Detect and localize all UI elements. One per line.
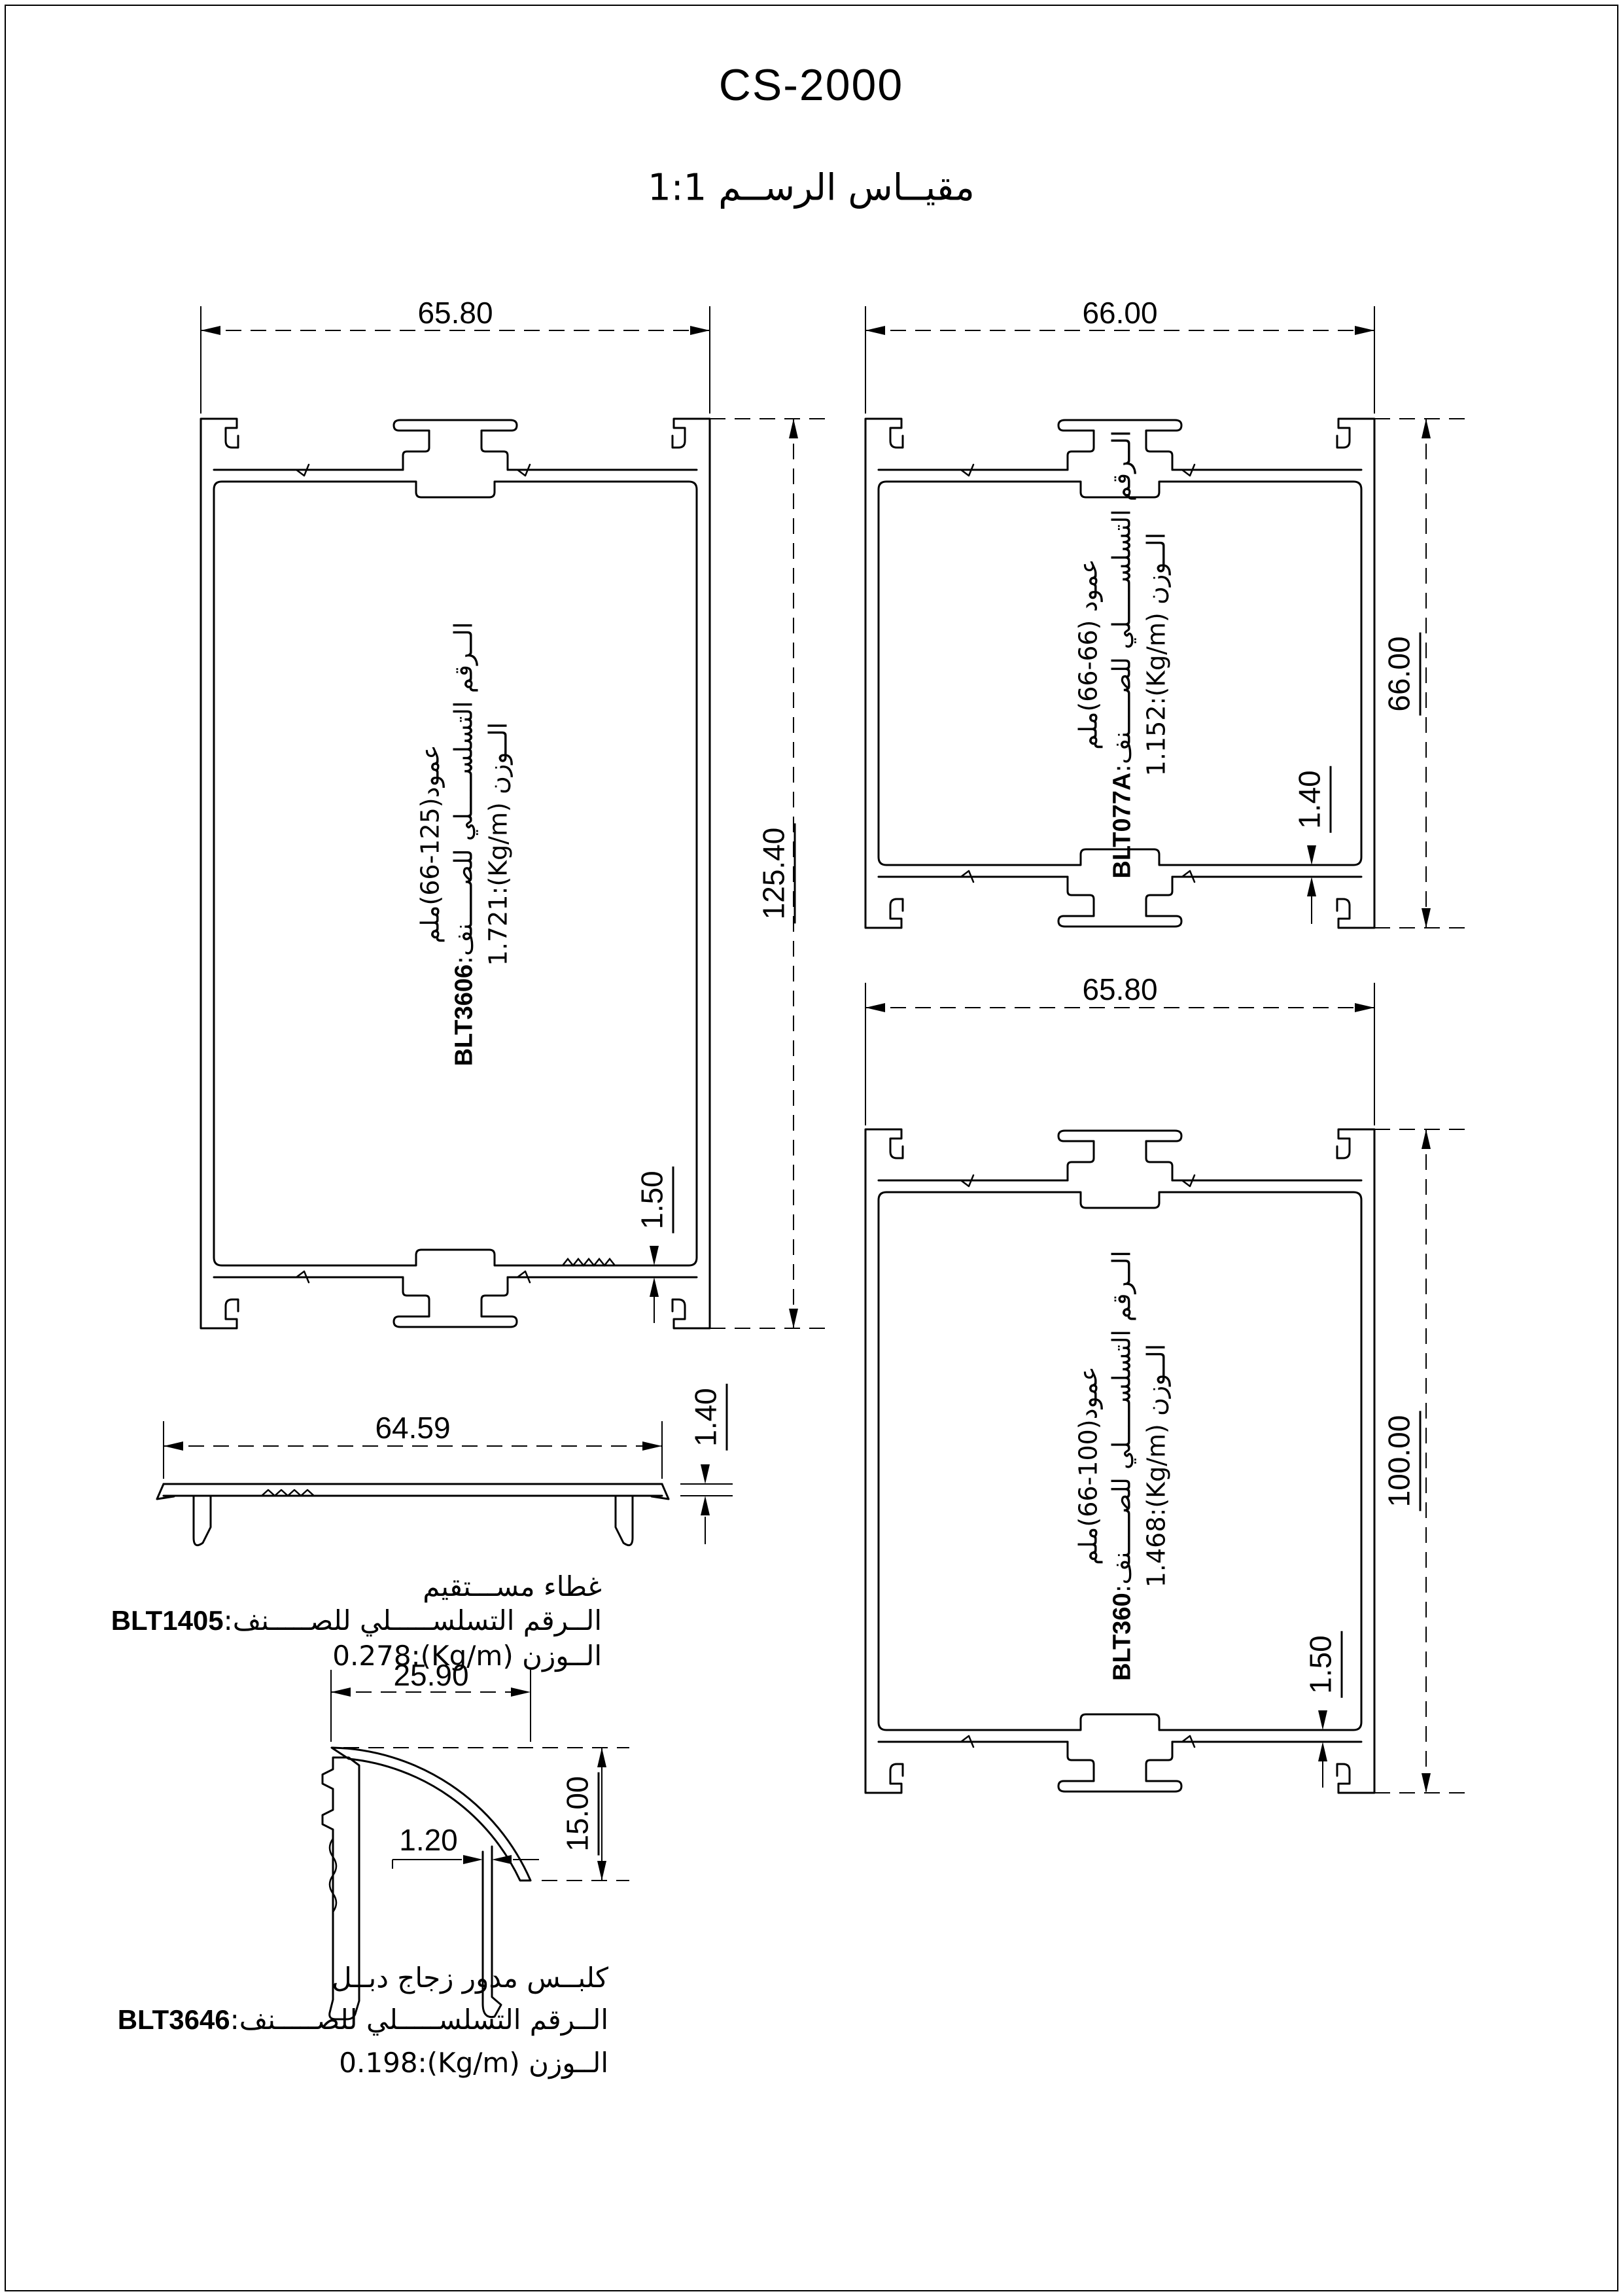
arrow-icon: [597, 1861, 606, 1881]
dim-blt3606-height: 125.40: [756, 824, 796, 924]
arrow-icon: [597, 1748, 606, 1767]
page-title: CS-2000: [719, 60, 903, 111]
arrow-icon: [1318, 1710, 1327, 1730]
arrow-icon: [1422, 1773, 1431, 1793]
serial-value: BLT077A: [1109, 773, 1136, 879]
weight-value: 1.152:(Kg/m): [1142, 612, 1170, 776]
weight-label: الــوزن: [529, 2047, 608, 2079]
dim-blt3606-wall: 1.50: [635, 1167, 674, 1233]
serial-value: BLT3606: [451, 964, 478, 1067]
arrow-icon: [492, 1855, 512, 1864]
cad-linework: [0, 0, 1623, 2296]
profile-name: عمود(125-66)ملم: [414, 622, 447, 1067]
weight-label: الــوزن: [1142, 1344, 1170, 1416]
weight-value: 0.278:(Kg/m): [332, 1640, 513, 1672]
sheet-border: [5, 5, 1618, 2291]
arrow-icon: [1422, 908, 1431, 928]
spec-block-blt360: عمود(100-66)ملم الــرقم التسلســـــلي لل…: [1072, 1250, 1174, 1681]
serial-label: الــرقم التسلســـــلي للصـــــنف:: [1108, 1250, 1136, 1593]
serial-value: BLT360: [1109, 1593, 1136, 1680]
arrow-icon: [1355, 326, 1374, 335]
arrow-icon: [331, 1687, 351, 1697]
dim-blt1405-thickness: 1.40: [688, 1384, 728, 1451]
serial-value: BLT1405: [111, 1605, 224, 1636]
dim-blt077a-wall: 1.40: [1292, 766, 1332, 833]
spec-block-blt3606: عمود(125-66)ملم الــرقم التسلســـــلي لل…: [414, 622, 515, 1067]
weight-label: الــوزن: [522, 1640, 602, 1672]
arrow-icon: [1422, 1129, 1431, 1149]
serial-value: BLT3646: [118, 2004, 230, 2035]
weight-value: 1.721:(Kg/m): [483, 802, 512, 966]
profile-weight-line: الــوزن 1.152:(Kg/m): [1140, 430, 1173, 878]
weight-label: الــوزن: [1142, 533, 1170, 605]
drawing-sheet: CS-2000 مقيــاس الرســم 1:1 65.80 66.00 …: [0, 0, 1623, 2296]
blt3646-serial-line: الــرقم التسلســـــلي للصـــــنف:BLT3646: [203, 2004, 608, 2036]
serial-label: الــرقم التسلســـــلي للصـــــنف:: [1108, 430, 1136, 772]
arrow-icon: [865, 326, 885, 335]
weight-value: 0.198:(Kg/m): [339, 2047, 519, 2079]
dim-blt077a-height: 66.00: [1382, 632, 1422, 715]
arrow-icon: [511, 1687, 531, 1697]
arrow-icon: [463, 1855, 483, 1864]
spec-block-blt077a: عمود (66-66)ملم الــرقم التسلســـــلي لل…: [1072, 430, 1174, 878]
dim-blt360-height: 100.00: [1382, 1411, 1422, 1511]
dim-blt1405-width: 64.59: [375, 1410, 450, 1445]
arrow-icon: [164, 1441, 183, 1451]
profile-serial-line: الــرقم التسلســـــلي للصـــــنف:BLT077A: [1106, 430, 1140, 878]
arrow-icon: [865, 1003, 885, 1012]
arrow-icon: [642, 1441, 662, 1451]
profile-serial-line: الــرقم التسلســـــلي للصـــــنف:BLT3606: [447, 622, 481, 1067]
dim-blt360-wall: 1.50: [1303, 1631, 1343, 1698]
serial-label: الــرقم التسلســـــلي للصـــــنف:: [224, 1604, 602, 1636]
arrow-icon: [789, 419, 798, 438]
blt1405-weight-line: الــوزن 0.278:(Kg/m): [196, 1640, 602, 1672]
arrow-icon: [1355, 1003, 1374, 1012]
arrow-icon: [789, 1309, 798, 1328]
profile-name: عمود (66-66)ملم: [1072, 430, 1106, 878]
arrow-icon: [690, 326, 710, 335]
page-subtitle: مقيــاس الرســم 1:1: [648, 167, 975, 209]
arrow-icon: [701, 1496, 710, 1515]
arrow-icon: [650, 1277, 659, 1297]
dim-blt360-width: 65.80: [1082, 972, 1157, 1007]
profile-blt1405-outline: [157, 1484, 669, 1545]
arrow-icon: [1422, 419, 1431, 438]
dim-blt3646-height: 15.00: [560, 1772, 600, 1855]
dim-blt077a-width: 66.00: [1082, 295, 1157, 330]
arrow-icon: [1318, 1742, 1327, 1761]
blt3646-name: كلبــس مدور زجاج دبــل: [203, 1962, 608, 1994]
arrow-icon: [201, 326, 220, 335]
arrow-icon: [1307, 845, 1316, 865]
profile-name: عمود(100-66)ملم: [1072, 1250, 1106, 1681]
serial-label: الــرقم التسلســـــلي للصـــــنف:: [230, 2004, 608, 2036]
weight-value: 1.468:(Kg/m): [1142, 1424, 1170, 1587]
profile-weight-line: الــوزن 1.721:(Kg/m): [481, 622, 515, 1067]
arrow-icon: [701, 1464, 710, 1484]
arrow-icon: [1307, 877, 1316, 896]
profile-serial-line: الــرقم التسلســـــلي للصـــــنف:BLT360: [1106, 1250, 1140, 1681]
arrow-icon: [650, 1246, 659, 1265]
profile-weight-line: الــوزن 1.468:(Kg/m): [1140, 1250, 1173, 1681]
dim-blt3606-width: 65.80: [417, 295, 493, 330]
serial-label: الــرقم التسلســـــلي للصـــــنف:: [449, 622, 478, 964]
blt1405-name: غطاء مســـتقيم: [196, 1570, 602, 1602]
blt1405-serial-line: الــرقم التسلســـــلي للصـــــنف:BLT1405: [196, 1604, 602, 1636]
blt3646-weight-line: الــوزن 0.198:(Kg/m): [203, 2047, 608, 2079]
weight-label: الــوزن: [483, 722, 512, 794]
dim-blt3646-wall: 1.20: [399, 1822, 458, 1858]
